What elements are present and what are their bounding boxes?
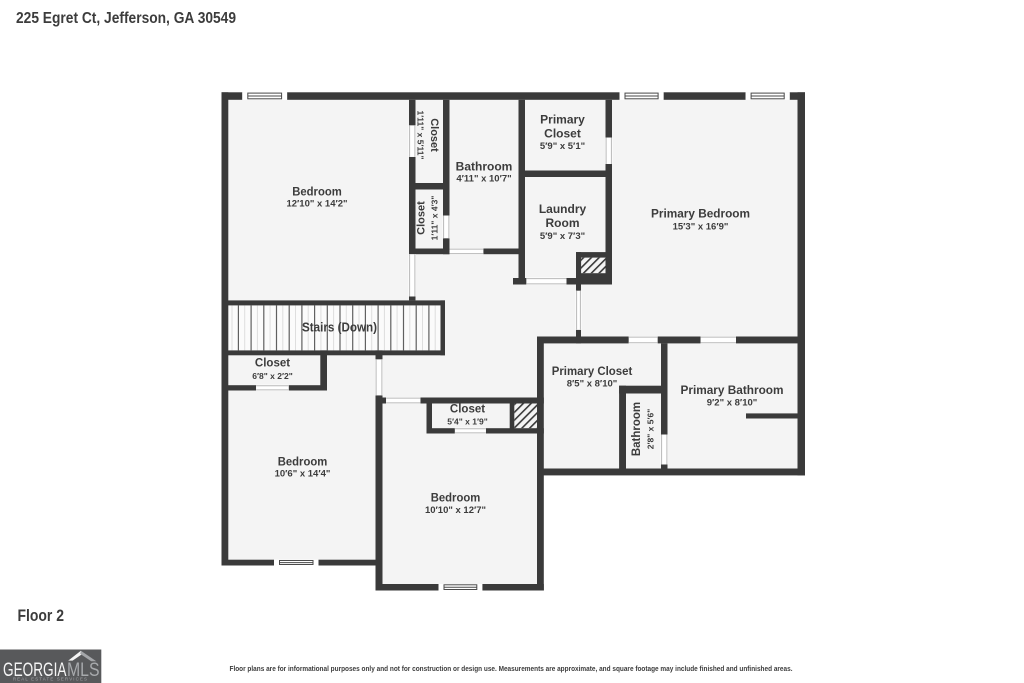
- svg-text:Primary Closet: Primary Closet: [552, 364, 633, 378]
- svg-text:Closet: Closet: [416, 201, 428, 235]
- svg-text:10′6" x 14′4": 10′6" x 14′4": [275, 469, 331, 480]
- svg-text:1′11" x 4′3": 1′11" x 4′3": [429, 196, 439, 241]
- svg-text:Closet: Closet: [450, 404, 485, 416]
- svg-text:5′9" x 5′1": 5′9" x 5′1": [540, 141, 585, 152]
- svg-text:Primary: Primary: [540, 113, 585, 127]
- svg-text:Bedroom: Bedroom: [292, 185, 342, 199]
- svg-text:225 Egret Ct, Jefferson, GA 30: 225 Egret Ct, Jefferson, GA 30549: [16, 10, 236, 27]
- svg-text:4′11" x 10′7": 4′11" x 10′7": [456, 174, 511, 185]
- svg-text:Stairs (Down): Stairs (Down): [302, 321, 377, 335]
- svg-text:Bathroom: Bathroom: [456, 160, 513, 174]
- svg-text:10′10" x 12′7": 10′10" x 12′7": [425, 505, 486, 516]
- svg-text:12′10" x 14′2": 12′10" x 14′2": [286, 199, 347, 210]
- svg-text:Closet: Closet: [255, 358, 290, 370]
- svg-text:Laundry: Laundry: [539, 202, 587, 216]
- svg-text:6′8" x 2′2": 6′8" x 2′2": [252, 371, 293, 381]
- svg-text:Closet: Closet: [544, 126, 581, 140]
- svg-text:5′9" x 7′3": 5′9" x 7′3": [540, 231, 585, 242]
- svg-text:Bedroom: Bedroom: [278, 455, 328, 469]
- svg-text:2′8" x 5′6": 2′8" x 5′6": [646, 409, 656, 450]
- svg-text:REAL ESTATE SERVICES: REAL ESTATE SERVICES: [13, 677, 88, 682]
- svg-text:Floor 2: Floor 2: [18, 606, 65, 625]
- svg-text:Bedroom: Bedroom: [431, 491, 481, 505]
- svg-text:5′4" x 1′9": 5′4" x 1′9": [447, 417, 488, 427]
- svg-text:1′11" x 5′11": 1′11" x 5′11": [416, 110, 426, 159]
- svg-text:Bathroom: Bathroom: [631, 402, 643, 456]
- svg-text:15′3" x 16′9": 15′3" x 16′9": [673, 222, 729, 233]
- svg-text:Primary Bathroom: Primary Bathroom: [681, 383, 784, 397]
- svg-text:Primary Bedroom: Primary Bedroom: [651, 207, 750, 221]
- svg-text:Room: Room: [546, 216, 580, 230]
- svg-text:Floor plans are for informatio: Floor plans are for informational purpos…: [230, 666, 793, 673]
- svg-text:Closet: Closet: [428, 118, 440, 152]
- svg-text:8′5" x 8′10": 8′5" x 8′10": [567, 379, 618, 390]
- svg-text:9′2" x 8′10": 9′2" x 8′10": [707, 398, 758, 409]
